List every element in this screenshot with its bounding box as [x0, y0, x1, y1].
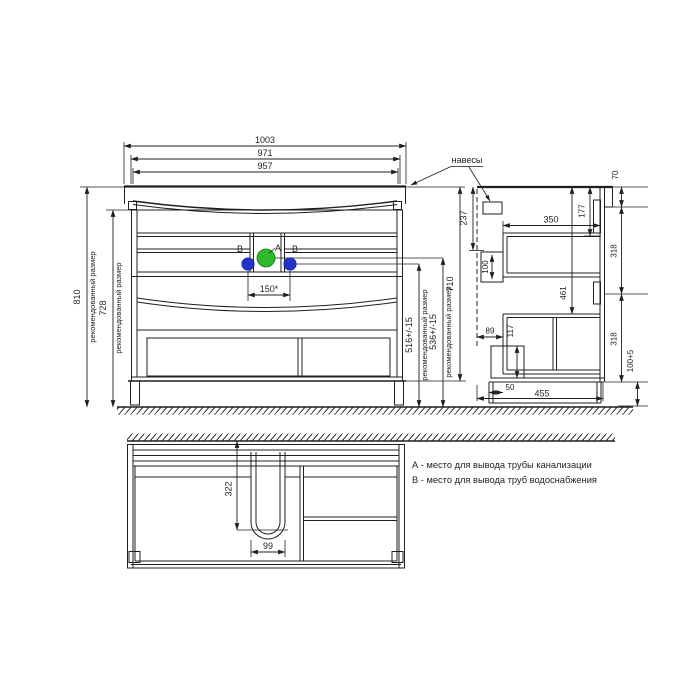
point-b-right-label: B [292, 244, 298, 254]
dim-318-upper: 318 [610, 244, 619, 258]
hanger-bracket [483, 202, 502, 214]
point-a-label: A [275, 243, 281, 253]
right-leg [395, 381, 404, 405]
dim-710: 710 [445, 276, 455, 291]
floor-line [117, 407, 633, 415]
dim-177: 177 [578, 204, 587, 218]
dim-322: 322 [224, 481, 234, 496]
dim-100: 100 [481, 260, 490, 274]
left-corner-bracket [129, 202, 137, 210]
dim-100plus5: 100+5 [626, 349, 635, 372]
front-view: A B B [124, 186, 443, 405]
point-b-left-label: B [237, 244, 243, 254]
dim-536-label: рекомендованный размер [444, 286, 453, 377]
dim-150: 150* [260, 284, 279, 294]
dim-461: 461 [559, 286, 568, 300]
right-corner-bracket [394, 202, 402, 210]
dim-536: 536+/-15 [428, 314, 438, 350]
hangers-label: навесы [452, 155, 483, 165]
dim-516: 516+/-15 [404, 317, 414, 353]
technical-drawing-page: A B B 1003 971 957 810 рекомендованный р… [0, 0, 700, 700]
water-outlet-point-b-left [242, 258, 254, 270]
dim-117: 117 [506, 324, 515, 337]
dim-89: 89 [486, 327, 495, 336]
dim-728-label: рекомендованный размер [114, 262, 123, 353]
dim-957: 957 [257, 161, 272, 171]
dim-318-lower: 318 [610, 332, 619, 346]
dim-728: 728 [98, 300, 108, 315]
dim-50: 50 [506, 383, 515, 392]
water-outlet-point-b-right [284, 258, 296, 270]
vanity-dimension-drawing: A B B 1003 971 957 810 рекомендованный р… [0, 0, 700, 700]
dim-455: 455 [534, 389, 549, 399]
upper-wall-rail [594, 200, 601, 233]
legend-line-a: А - место для вывода трубы канализации [412, 460, 592, 470]
dim-70: 70 [611, 170, 620, 179]
bottom-view [127, 434, 615, 569]
dim-350: 350 [543, 215, 558, 225]
middle-wall-rail [594, 282, 601, 304]
dim-1003: 1003 [255, 135, 275, 145]
dim-810-label: рекомендованный размер [88, 251, 97, 342]
pipe-cutout-u [251, 452, 285, 539]
lower-drawer-panel [147, 338, 390, 376]
legend-line-b: В - место для вывода труб водоснабжения [412, 475, 597, 485]
dim-971: 971 [257, 148, 272, 158]
legend: А - место для вывода трубы канализации В… [412, 460, 597, 485]
dim-810: 810 [72, 289, 82, 304]
dim-237: 237 [459, 210, 469, 225]
left-leg [131, 381, 140, 405]
dim-99: 99 [263, 541, 273, 551]
drain-outlet-point-a [257, 249, 275, 267]
wall-hatch [127, 434, 615, 441]
drawer-front-curve [137, 298, 397, 308]
